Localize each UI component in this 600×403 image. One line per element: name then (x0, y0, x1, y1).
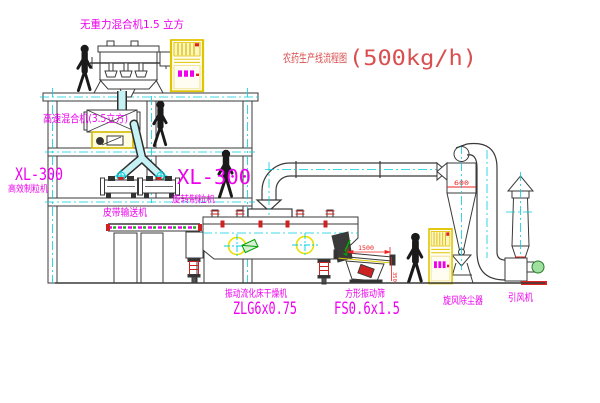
granulator-left (101, 176, 142, 198)
person-4 (408, 233, 422, 282)
dim-screen-length: 1500 (358, 244, 374, 252)
fluid-bed-dryer (186, 210, 358, 284)
dryer-feed-duct (248, 161, 440, 219)
label-granulator-left-model: XL-300 (15, 165, 63, 185)
dim-screen-height: 350 (391, 272, 397, 282)
label-screen-model: FS0.6x1.5 (334, 299, 400, 319)
control-cabinet-2 (429, 229, 452, 283)
control-cabinet-1 (171, 40, 203, 91)
label-dryer-model: ZLG6x0.75 (233, 299, 297, 319)
person-1 (78, 45, 91, 91)
label-granulator-left-name: 高效制粒机 (8, 183, 48, 195)
induced-draft-fan (505, 258, 547, 285)
label-cyclone-name: 旋风除尘器 (443, 294, 483, 307)
label-fan-name: 引风机 (508, 291, 533, 304)
gravity-free-mixer (90, 41, 175, 97)
dim-cyclone-diameter: 600 (454, 180, 470, 187)
label-belt-conveyor: 皮带输送机 (103, 206, 147, 219)
label-gravity-mixer: 无重力混合机1.5 立方 (80, 17, 184, 31)
flow-diagram-canvas: 农药生产线流程图 (500kg/h) 无重力混合机1.5 立方 高速混合机(3.… (0, 0, 600, 403)
title-capacity: (500kg/h) (349, 46, 477, 70)
label-granulator-right-name: 旋转制粒机 (172, 194, 215, 206)
page-title: 农药生产线流程图 (283, 51, 347, 65)
label-granulator-right-model: XL-300 (177, 165, 251, 189)
label-high-speed-mixer: 高速混合机(3.5立方) (43, 112, 128, 125)
